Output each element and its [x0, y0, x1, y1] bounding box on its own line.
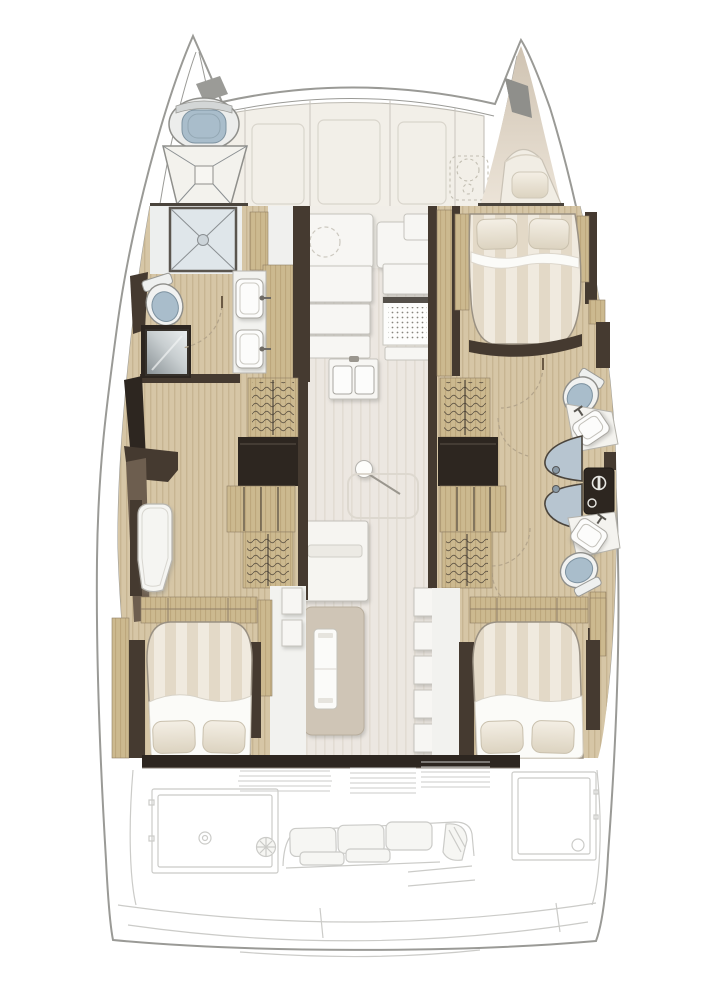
salon-table	[304, 607, 364, 735]
salon-sideboard	[302, 521, 368, 601]
shower-column-panel	[584, 468, 614, 514]
port-chaise	[130, 500, 172, 596]
salon-front-units	[299, 214, 433, 268]
floor-plan-svg	[0, 0, 710, 994]
bow-berth-pillow	[512, 172, 548, 198]
pillow	[152, 720, 195, 753]
port-shower-glass	[141, 325, 191, 378]
stove	[383, 297, 431, 345]
toilet-bow	[169, 98, 239, 150]
pillow	[528, 218, 569, 249]
pillow	[480, 720, 523, 753]
starboard-entry-landing	[432, 588, 460, 758]
galley-sink	[329, 356, 378, 399]
starboard-wardrobe-aft	[442, 532, 492, 588]
port-wardrobe-fwd	[248, 378, 298, 437]
port-hull	[112, 206, 310, 758]
port-steps	[282, 588, 302, 614]
port-wardrobe-aft	[243, 532, 293, 588]
pillow	[476, 218, 517, 249]
bench-cushion	[386, 822, 432, 850]
galley-faucet	[349, 356, 359, 362]
port-shelf-unit	[227, 486, 295, 532]
starboard-shelf-unit	[440, 486, 506, 532]
starboard-hull	[428, 206, 620, 758]
salon	[299, 206, 434, 758]
pillow	[202, 720, 245, 753]
pillow	[531, 720, 574, 753]
catamaran-floor-plan	[0, 0, 710, 994]
port-vanity	[233, 271, 271, 373]
starboard-wardrobe-fwd	[440, 378, 490, 437]
port-steps	[282, 620, 302, 646]
foredeck	[226, 100, 488, 212]
port-shower-tray	[170, 208, 236, 271]
winch	[257, 838, 276, 857]
starboard-companionway-steps	[414, 588, 434, 752]
